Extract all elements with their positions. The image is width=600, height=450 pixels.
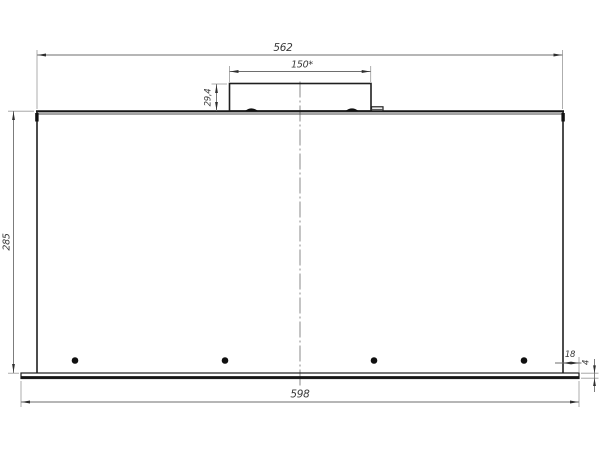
arrowhead-left (230, 70, 239, 73)
dim-label-duct-width: 150* (291, 60, 313, 71)
duct-screw-bump-right (346, 108, 359, 111)
technical-drawing-canvas: 562 150* 29,4 285 598 (0, 0, 600, 450)
dim-label-duct-height: 29,4 (204, 89, 214, 107)
arrowhead-right (570, 401, 579, 404)
dim-label-total-width: 562 (273, 42, 293, 54)
dim-label-base-overhang: 18 (565, 350, 576, 360)
arrowhead-left (22, 401, 31, 404)
arrowhead-right (554, 54, 563, 57)
arrowhead-bottom (215, 102, 218, 111)
dimension-base-overhang: 18 (555, 350, 582, 372)
arrowhead-bottom (593, 378, 596, 386)
dim-label-base-width: 598 (290, 389, 310, 401)
screw-dot-1 (72, 357, 79, 364)
arrowhead-right (362, 70, 371, 73)
arrowhead-top (593, 365, 596, 373)
dimension-duct-width: 150* (230, 60, 371, 83)
dimension-base-thickness: 4 (581, 359, 599, 392)
arrowhead-top (12, 112, 15, 121)
arrowhead-bottom (12, 364, 15, 373)
dimension-body-height: 285 (2, 111, 35, 373)
screw-dot-3 (371, 357, 378, 364)
drawing-svg: 562 150* 29,4 285 598 (0, 0, 600, 450)
dim-label-base-thickness: 4 (582, 360, 592, 365)
arrowhead-right (571, 362, 579, 365)
arrowhead-left (563, 362, 571, 365)
arrowhead-top (215, 85, 218, 94)
left-corner-hook (35, 113, 38, 122)
screw-dot-2 (222, 357, 229, 364)
arrowhead-left (38, 54, 47, 57)
duct-screw-bump-left (245, 108, 258, 111)
duct-box (230, 84, 384, 112)
dimension-duct-height: 29,4 (204, 84, 228, 111)
dimension-total-width: 562 (37, 42, 563, 109)
right-corner-hook (561, 113, 564, 122)
screw-dot-4 (521, 357, 528, 364)
dim-label-body-height: 285 (2, 233, 13, 250)
